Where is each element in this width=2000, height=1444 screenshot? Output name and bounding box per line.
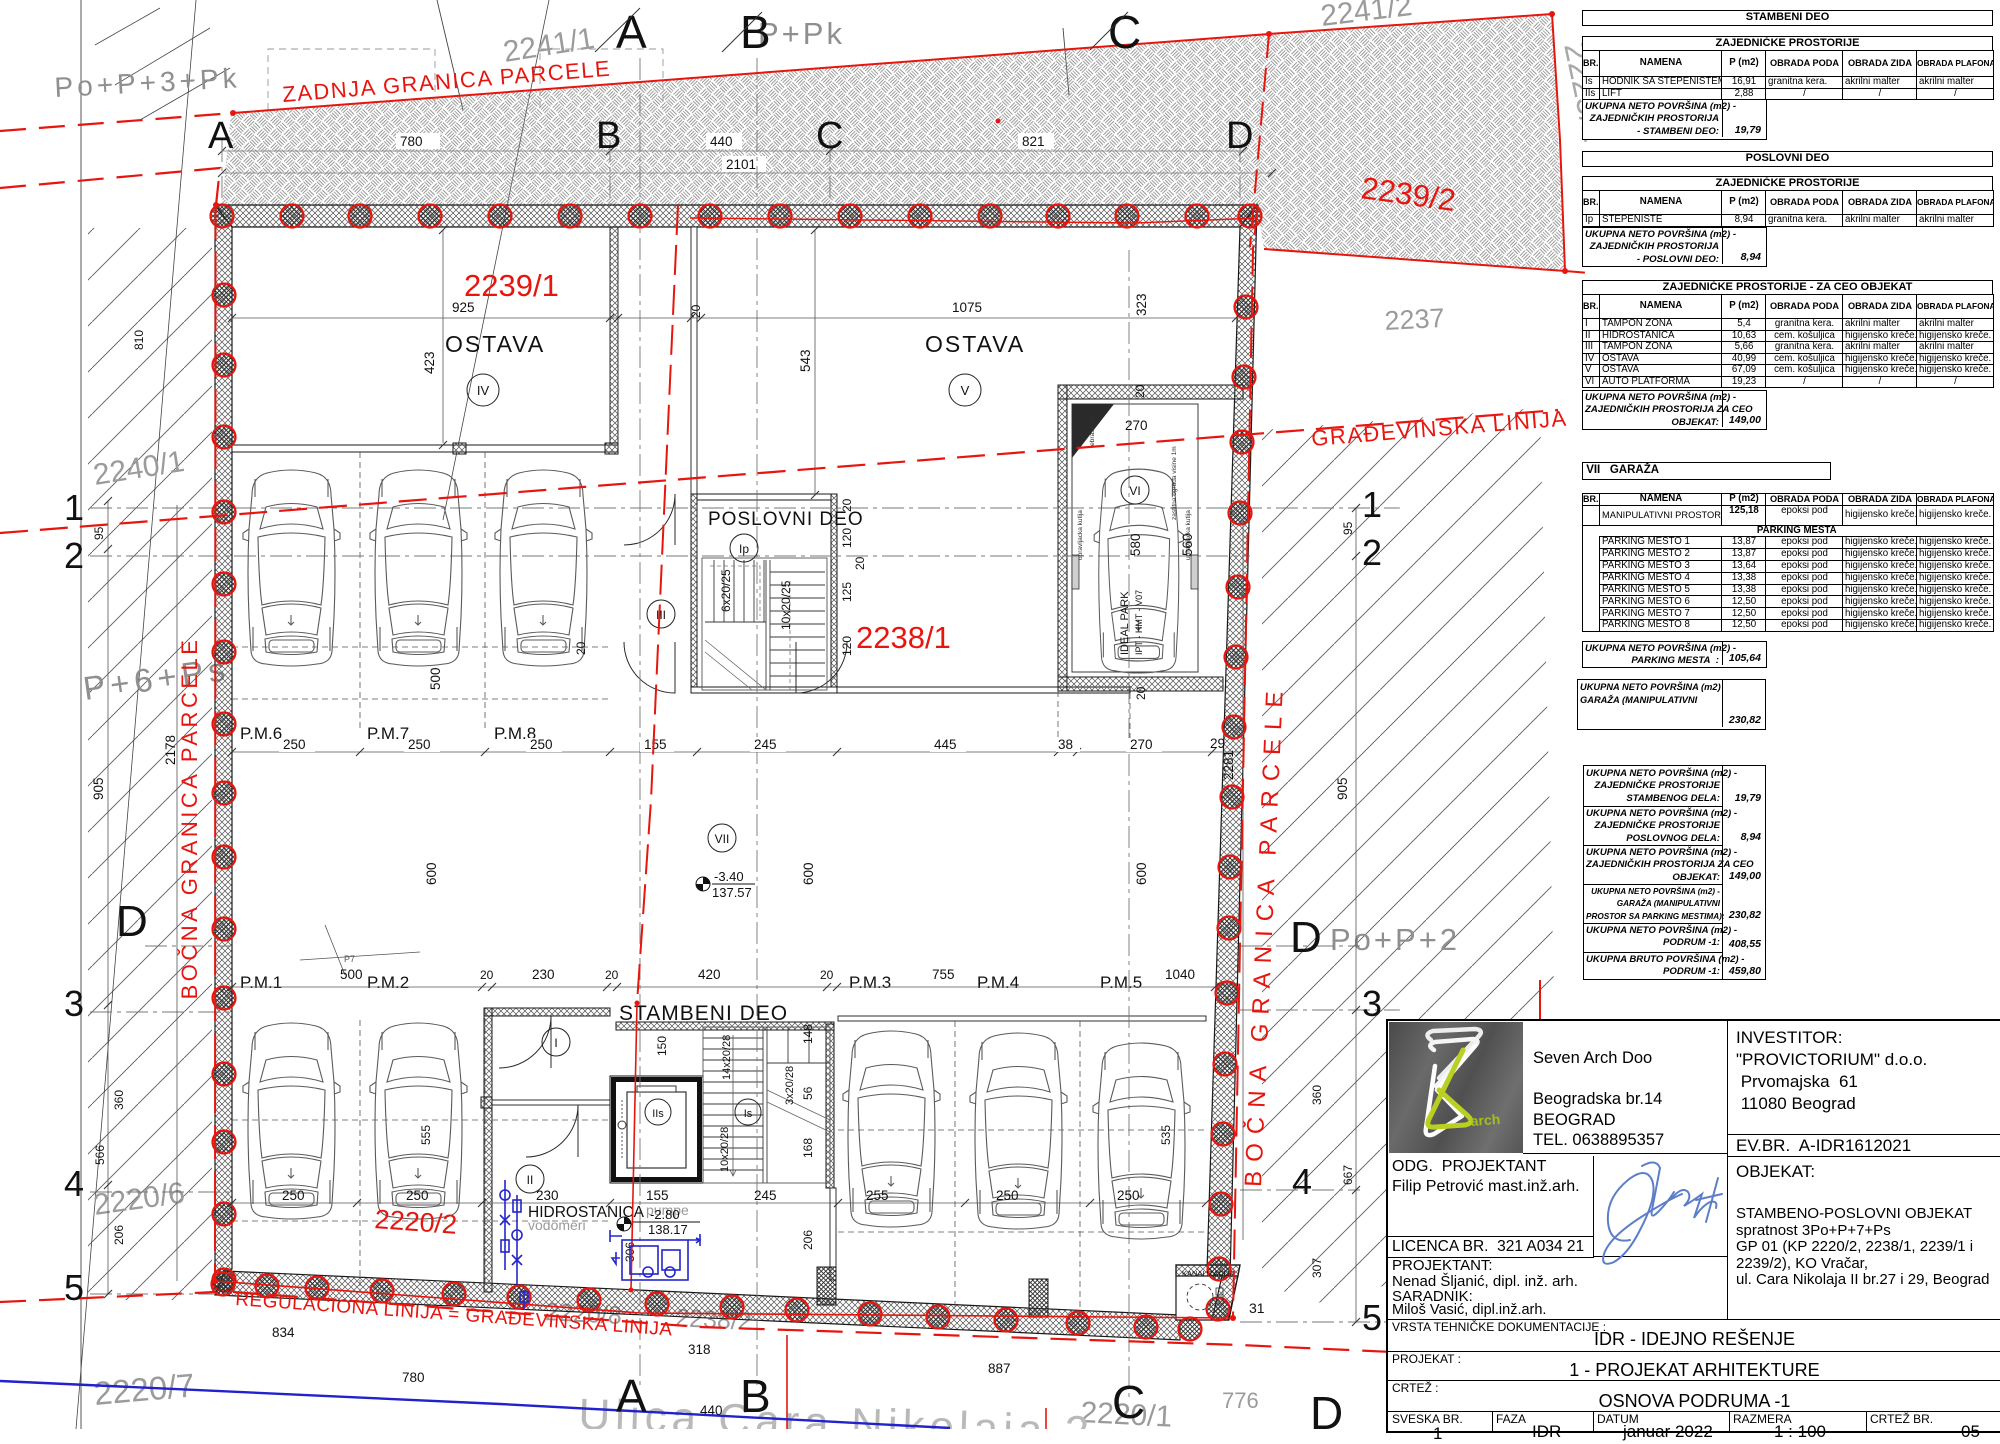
svg-text:600: 600	[801, 862, 816, 885]
svg-text:29: 29	[1210, 736, 1225, 751]
svg-text:1: 1	[64, 487, 84, 528]
svg-text:P.M.5: P.M.5	[1100, 973, 1142, 992]
svg-text:P.M.7: P.M.7	[367, 724, 409, 743]
svg-text:20: 20	[840, 498, 854, 512]
svg-text:20: 20	[689, 304, 703, 318]
svg-text:250: 250	[408, 737, 431, 752]
svg-text:125: 125	[840, 582, 854, 602]
svg-text:zastitna ograda visine 1m: zastitna ograda visine 1m	[1171, 446, 1178, 520]
svg-text:3x20/28: 3x20/28	[784, 1066, 796, 1105]
svg-text:155: 155	[646, 1188, 669, 1203]
svg-text:150: 150	[655, 1036, 669, 1056]
svg-text:250: 250	[406, 1188, 429, 1203]
svg-text:776: 776	[1222, 1388, 1259, 1413]
svg-text:834: 834	[272, 1325, 295, 1340]
svg-text:IIs: IIs	[652, 1108, 664, 1120]
svg-text:360: 360	[1310, 1085, 1324, 1105]
svg-text:D: D	[1226, 115, 1253, 157]
svg-text:IDEAL PARK: IDEAL PARK	[1119, 591, 1131, 655]
svg-text:230: 230	[532, 967, 555, 982]
svg-text:B: B	[740, 1370, 771, 1422]
svg-text:250: 250	[996, 1188, 1019, 1203]
svg-text:821: 821	[1022, 134, 1045, 149]
svg-text:20: 20	[1133, 384, 1147, 398]
svg-text:20: 20	[1134, 686, 1148, 700]
svg-text:206: 206	[801, 1230, 815, 1250]
svg-text:1: 1	[1362, 484, 1382, 525]
svg-text:560: 560	[1180, 533, 1195, 556]
svg-text:4: 4	[1292, 1161, 1312, 1202]
svg-text:14x20/28: 14x20/28	[721, 1035, 733, 1080]
svg-text:10x20/28: 10x20/28	[719, 1127, 731, 1172]
svg-text:31: 31	[1249, 1300, 1265, 1316]
svg-text:307: 307	[1310, 1258, 1324, 1278]
svg-text:1075: 1075	[952, 300, 982, 315]
svg-text:P.M.1: P.M.1	[240, 973, 282, 992]
svg-text:20: 20	[853, 556, 867, 570]
svg-text:D: D	[1310, 1387, 1343, 1429]
svg-text:B: B	[596, 115, 621, 157]
svg-text:2238/1: 2238/1	[856, 620, 951, 655]
svg-text:A: A	[616, 1370, 647, 1422]
svg-text:VII: VII	[715, 832, 730, 846]
svg-text:120: 120	[840, 528, 854, 548]
svg-text:-2.80: -2.80	[650, 1207, 680, 1222]
svg-text:555: 555	[419, 1125, 433, 1145]
svg-text:780: 780	[400, 134, 423, 149]
svg-text:600: 600	[1134, 862, 1149, 885]
svg-text:vodomeri: vodomeri	[528, 1217, 586, 1233]
svg-text:250: 250	[283, 737, 306, 752]
svg-text:Ulica Cara Nikolaja 2: Ulica Cara Nikolaja 2	[578, 1390, 1095, 1429]
svg-text:245: 245	[754, 1188, 777, 1203]
svg-text:Ip: Ip	[739, 542, 749, 556]
svg-text:500: 500	[340, 967, 363, 982]
svg-text:500: 500	[428, 667, 443, 690]
svg-text:168: 168	[801, 1138, 815, 1158]
svg-text:270: 270	[1130, 737, 1153, 752]
svg-text:2237: 2237	[1384, 303, 1446, 336]
svg-text:95: 95	[1341, 521, 1355, 535]
svg-text:255: 255	[866, 1188, 889, 1203]
svg-text:250: 250	[1117, 1188, 1140, 1203]
svg-text:D: D	[116, 897, 148, 946]
svg-text:780: 780	[402, 1370, 425, 1385]
svg-text:I: I	[554, 1036, 557, 1050]
svg-text:IPT - HMT - V07: IPT - HMT - V07	[1134, 590, 1144, 655]
svg-text:20: 20	[820, 968, 834, 982]
svg-text:3: 3	[1362, 983, 1382, 1024]
svg-text:755: 755	[932, 967, 955, 982]
svg-text:20: 20	[480, 968, 494, 982]
svg-text:B: B	[740, 6, 771, 58]
svg-text:arch: arch	[1470, 1111, 1501, 1129]
svg-text:360: 360	[112, 1090, 126, 1110]
svg-text:D: D	[1290, 913, 1322, 962]
svg-text:KANALIZACIJA: KANALIZACIJA	[1182, 1269, 1235, 1278]
svg-text:V: V	[961, 383, 970, 398]
svg-text:P+Pk: P+Pk	[758, 16, 845, 51]
svg-text:5: 5	[1362, 1297, 1382, 1338]
svg-text:2: 2	[1362, 532, 1382, 573]
svg-text:C: C	[816, 115, 843, 157]
svg-text:Is: Is	[744, 1108, 753, 1120]
svg-text:4: 4	[64, 1163, 84, 1204]
svg-text:543: 543	[798, 349, 813, 372]
svg-text:P.M.3: P.M.3	[849, 973, 891, 992]
svg-text:2220/2: 2220/2	[374, 1204, 458, 1240]
svg-text:600: 600	[424, 862, 439, 885]
svg-text:445: 445	[934, 737, 957, 752]
svg-text:230: 230	[536, 1188, 559, 1203]
svg-text:420: 420	[698, 967, 721, 982]
svg-text:667: 667	[1341, 1165, 1355, 1185]
svg-text:56: 56	[801, 1086, 815, 1100]
svg-text:2178: 2178	[163, 735, 178, 765]
svg-text:2281: 2281	[1221, 750, 1236, 780]
svg-text:Po+P+3+Pk: Po+P+3+Pk	[54, 62, 242, 103]
svg-text:20: 20	[574, 641, 588, 655]
svg-text:905: 905	[91, 777, 106, 800]
svg-text:upravljacka kutija: upravljacka kutija	[1077, 510, 1084, 560]
svg-text:II: II	[527, 1173, 534, 1187]
svg-text:BOČNA GRANICA PARCELE: BOČNA GRANICA PARCELE	[177, 637, 202, 1000]
svg-text:rebrasti lim: rebrasti lim	[1089, 416, 1096, 448]
svg-text:887: 887	[988, 1361, 1011, 1376]
svg-text:2239/1: 2239/1	[464, 268, 559, 303]
svg-text:318: 318	[688, 1342, 711, 1357]
svg-text:2101: 2101	[726, 157, 756, 172]
svg-text:245: 245	[754, 737, 777, 752]
svg-text:Po+P+2: Po+P+2	[1330, 922, 1460, 957]
svg-text:206: 206	[112, 1225, 126, 1245]
svg-text:III: III	[656, 608, 666, 622]
svg-text:P7: P7	[344, 954, 355, 964]
svg-text:535: 535	[1159, 1125, 1173, 1145]
svg-text:P.M.6: P.M.6	[240, 724, 282, 743]
svg-text:905: 905	[1335, 777, 1350, 800]
svg-text:566: 566	[93, 1145, 107, 1165]
svg-text:VI: VI	[1129, 484, 1140, 498]
svg-text:20: 20	[605, 968, 619, 982]
svg-text:C: C	[1108, 6, 1141, 58]
svg-text:138.17: 138.17	[648, 1222, 688, 1237]
svg-text:OSTAVA: OSTAVA	[925, 331, 1025, 357]
svg-text:148: 148	[801, 1024, 815, 1044]
svg-text:423: 423	[422, 351, 437, 374]
svg-text:2: 2	[64, 535, 84, 576]
svg-text:810: 810	[132, 330, 146, 350]
svg-text:1040: 1040	[1165, 967, 1195, 982]
svg-text:OSTAVA: OSTAVA	[445, 331, 545, 357]
svg-text:38: 38	[1058, 737, 1073, 752]
svg-text:6x20/25: 6x20/25	[719, 569, 733, 612]
svg-text:440: 440	[710, 134, 733, 149]
svg-text:P.M.4: P.M.4	[977, 973, 1019, 992]
svg-text:A: A	[208, 115, 234, 157]
svg-text:P.M.2: P.M.2	[367, 973, 409, 992]
svg-text:95: 95	[92, 526, 106, 540]
svg-text:-3.40: -3.40	[714, 869, 744, 884]
svg-text:250: 250	[282, 1188, 305, 1203]
svg-text:A: A	[616, 6, 647, 58]
svg-text:323: 323	[1134, 293, 1149, 316]
svg-text:250: 250	[530, 737, 553, 752]
svg-text:155: 155	[644, 737, 667, 752]
svg-text:STAMBENI DEO: STAMBENI DEO	[619, 1002, 788, 1025]
svg-text:137.57: 137.57	[712, 885, 752, 900]
svg-text:C: C	[1112, 1376, 1145, 1428]
svg-text:270: 270	[1125, 418, 1148, 433]
svg-text:10x20/25: 10x20/25	[779, 580, 793, 630]
svg-text:IV: IV	[477, 383, 490, 398]
svg-text:5: 5	[64, 1267, 84, 1308]
svg-text:580: 580	[1128, 533, 1143, 556]
svg-text:120: 120	[840, 636, 854, 656]
svg-text:3: 3	[64, 983, 84, 1024]
